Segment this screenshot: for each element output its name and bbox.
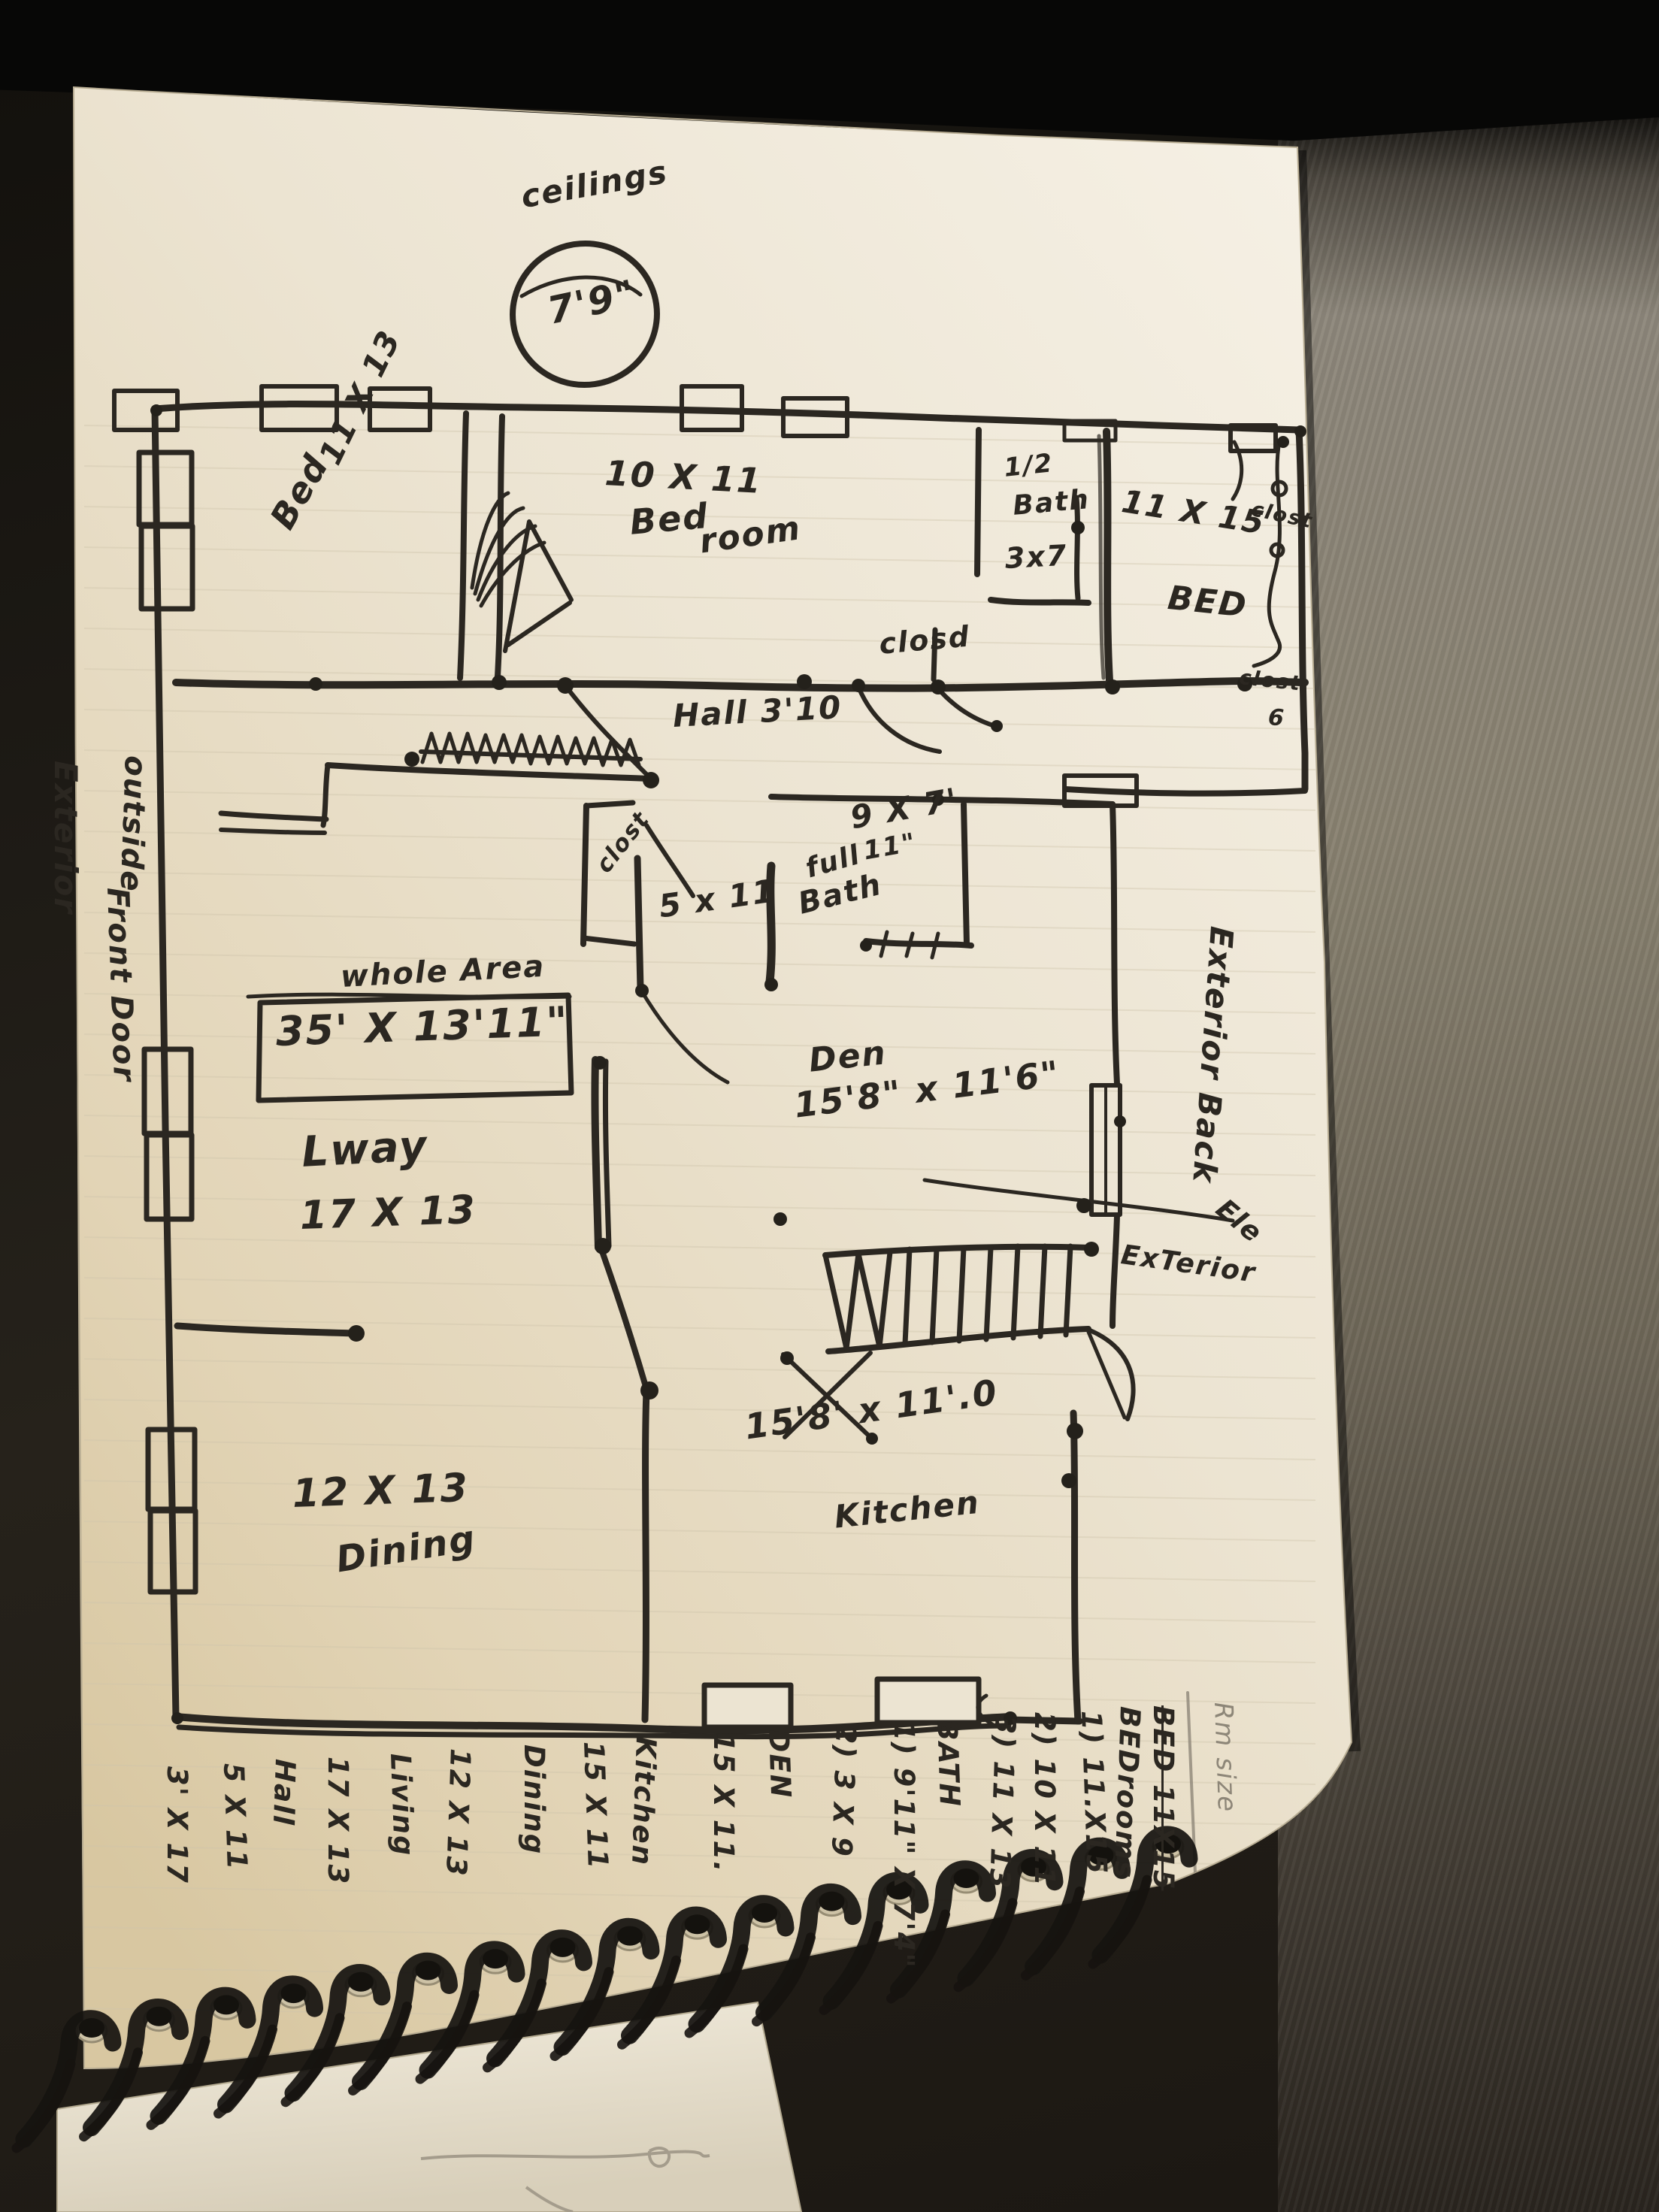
ele-note: Ele (1211, 1195, 1267, 1248)
summary-list-item: 12 X 13 (442, 1748, 474, 1878)
room-dims-bed1: 11 X 13 (314, 325, 406, 469)
whole-area-label: whole Area (340, 952, 546, 992)
whole-area-dims: 35' X 13'11" (275, 1001, 570, 1052)
room-label-halfbath-1: 1/2 (1003, 450, 1055, 481)
living-dims: 17 X 13 (299, 1191, 477, 1236)
room-label-bed3: BED (1166, 582, 1249, 623)
ceiling-height: 7'9" (544, 274, 640, 330)
summary-list-item: 2) 10 X 11 (1031, 1712, 1058, 1887)
summary-list-item: 1) 11.X15 (1077, 1710, 1111, 1875)
photo-of-floorplan-sketch: ceilings 7'9" Bed 11 X 13 10 X 11 Bed ro… (0, 0, 1659, 2212)
closet-label-hall: closd (878, 622, 971, 658)
fullbath-dims-1: 9 X 7' (848, 784, 961, 834)
exterior-back-note: Exterior Back (1188, 925, 1237, 1185)
summary-list-item: 3) 11 X 13 (985, 1714, 1019, 1890)
summary-list-item: Kitchen (628, 1736, 660, 1867)
fullbath-dims-2: 11" (861, 830, 919, 864)
kitchen-dims: 15'8' x 11'.0 (743, 1375, 1001, 1445)
summary-list-item: Dining (520, 1744, 548, 1855)
dining-label: Dining (334, 1521, 479, 1578)
front-door-word: outside (116, 755, 150, 894)
summary-list-item: Living (386, 1753, 418, 1857)
room-label-halfbath-2: Bath (1012, 486, 1091, 520)
closet-label-right-bottom: clost (1238, 667, 1302, 694)
summary-list-item: Hall (269, 1759, 299, 1827)
summary-list-item: 15 X 11 (580, 1741, 612, 1870)
closet-number: 6 (1267, 707, 1286, 731)
room-label-halfbath-3: 3x7 (1004, 541, 1068, 573)
summary-list-item: DEN (764, 1729, 795, 1799)
summary-list-item: BATH (933, 1719, 964, 1808)
summary-list-item: 2) 3 X 9 (828, 1724, 860, 1859)
closet-label-mid: clost (592, 807, 654, 877)
summary-list-item: BEDrooms (1110, 1706, 1144, 1880)
summary-list-item: 15 X 11. (710, 1732, 737, 1873)
summary-list-item: BED 11X15 (1149, 1705, 1177, 1891)
dining-dims: 12 X 13 (292, 1469, 470, 1514)
exterior-stairs-note: ExTerior (1119, 1242, 1258, 1288)
summary-list-item: 17 X 13 (324, 1757, 352, 1885)
exterior-left-note: Exterior (50, 761, 81, 915)
kitchen-label: Kitchen (833, 1487, 982, 1533)
summary-list-item: 5 X 11 (219, 1763, 251, 1872)
summary-list-item: 1) 9'11" X 7'4" (890, 1721, 918, 1969)
room-dims-bed3: 11 X 15 (1119, 486, 1267, 540)
ceiling-note: ceilings (519, 156, 671, 213)
living-label: Lway (301, 1125, 429, 1174)
handwritten-labels: ceilings 7'9" Bed 11 X 13 10 X 11 Bed ro… (0, 0, 1659, 2212)
room-dims-bed2: 10 X 11 (604, 455, 764, 498)
closet-mid-dims: 5 x 11 (657, 875, 777, 922)
room-label-bed1: Bed (265, 449, 334, 534)
summary-list-item: 3' X 17 (163, 1766, 191, 1884)
den-label: Den (807, 1036, 889, 1078)
front-door-note: Front Door (102, 887, 139, 1083)
hall-label: Hall 3'10 (672, 691, 843, 732)
summary-list-item: Rm size (1210, 1702, 1240, 1814)
room-label-bed2-line2: room (698, 512, 804, 559)
